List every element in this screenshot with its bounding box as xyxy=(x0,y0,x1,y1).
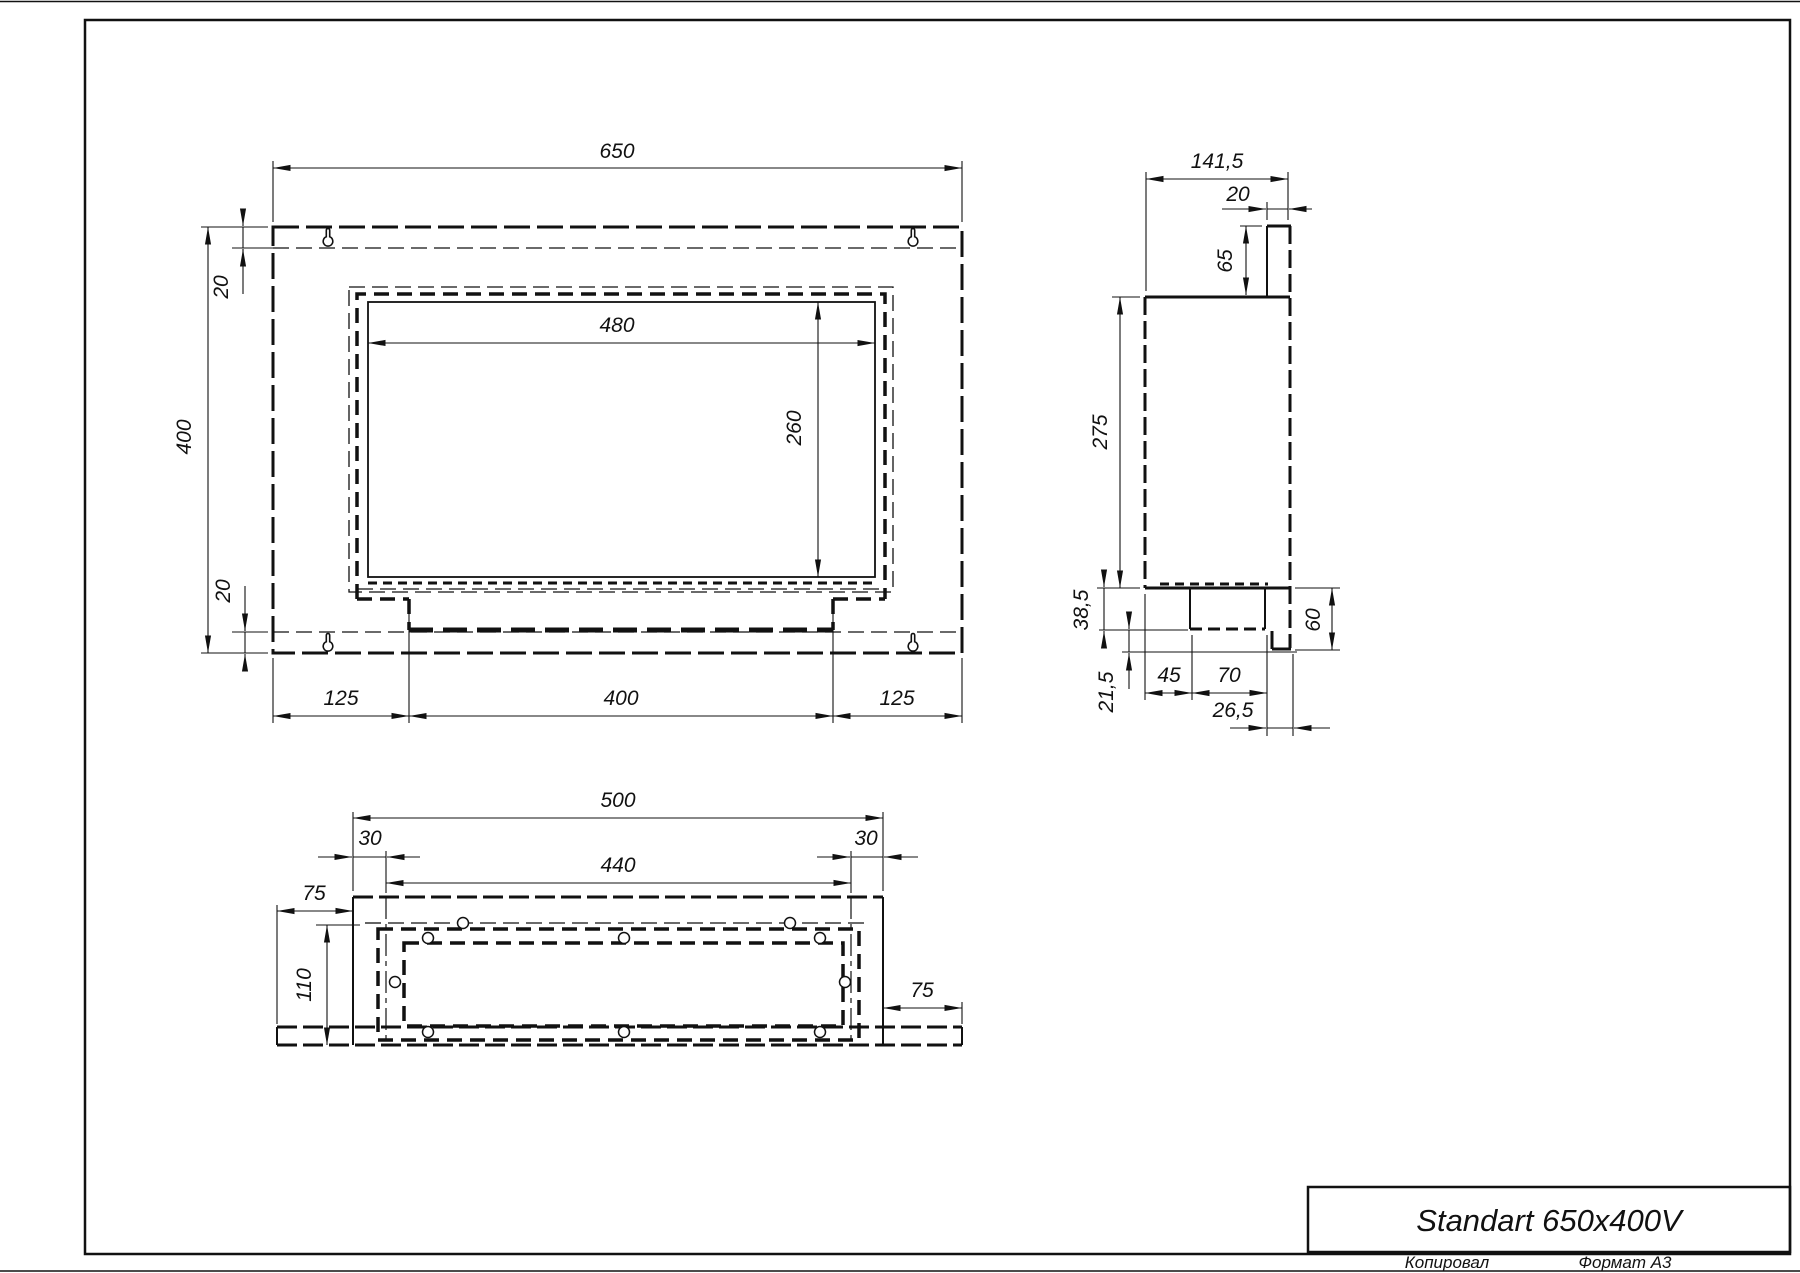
dim-front-height: 400 xyxy=(173,419,196,454)
dim-front-width: 650 xyxy=(599,140,634,163)
keyhole-mount-icon xyxy=(323,229,918,652)
dim-front-bottom-left: 125 xyxy=(323,687,358,710)
drawing-frame xyxy=(85,20,1790,1254)
dim-side-body-height: 275 xyxy=(1089,414,1112,450)
dim-side-tray-width: 70 xyxy=(1217,664,1241,687)
dim-side-lip-height: 21,5 xyxy=(1095,671,1118,713)
side-view-outline xyxy=(1145,226,1291,649)
dim-side-tray-offset: 45 xyxy=(1157,664,1181,687)
side-view: 141,5 20 65 275 38,5 21,5 45 70 26,5 60 xyxy=(1070,150,1340,736)
dim-front-bottom-offset: 20 xyxy=(212,579,235,604)
drawing-sheet: 650 400 20 20 480 260 125 400 125 xyxy=(0,0,1800,1273)
dim-bottom-inner-width: 440 xyxy=(600,854,635,877)
dim-bottom-body-width: 500 xyxy=(600,789,635,812)
paper-edges xyxy=(0,2,1800,1272)
dim-side-flange-height: 65 xyxy=(1214,249,1237,273)
front-insert-box xyxy=(349,287,893,630)
front-view-dimensions xyxy=(201,161,962,723)
dim-bottom-left-flange: 75 xyxy=(302,882,326,905)
dim-front-opening-height: 260 xyxy=(783,410,806,446)
bottom-view-outline xyxy=(277,897,962,1045)
copied-label: Копировал xyxy=(1405,1253,1490,1272)
dim-bottom-left-offset: 30 xyxy=(358,827,382,850)
dim-front-bottom-right: 125 xyxy=(879,687,914,710)
dim-bottom-right-flange: 75 xyxy=(910,979,934,1002)
dim-front-tray-width: 400 xyxy=(603,687,638,710)
dim-side-lower-height: 60 xyxy=(1302,608,1325,632)
dim-front-top-offset: 20 xyxy=(210,275,233,300)
dim-bottom-right-offset: 30 xyxy=(854,827,878,850)
dim-front-opening-width: 480 xyxy=(599,314,634,337)
dim-bottom-depth: 110 xyxy=(293,968,316,1002)
dim-side-lip-depth: 26,5 xyxy=(1212,699,1254,722)
technical-drawing: 650 400 20 20 480 260 125 400 125 xyxy=(0,0,1800,1273)
dim-side-total-depth: 141,5 xyxy=(1191,150,1244,173)
bottom-view: 500 30 440 30 75 110 75 xyxy=(277,789,962,1045)
drawing-title: Standart 650x400V xyxy=(1416,1203,1685,1238)
format-label: Формат А3 xyxy=(1578,1253,1672,1272)
mounting-holes xyxy=(390,918,851,1038)
dim-side-tray-height: 38,5 xyxy=(1070,589,1093,630)
front-view: 650 400 20 20 480 260 125 400 125 xyxy=(173,140,962,723)
dim-side-flange-depth: 20 xyxy=(1225,183,1250,206)
title-block: Standart 650x400V Копировал Формат А3 xyxy=(1308,1187,1790,1272)
